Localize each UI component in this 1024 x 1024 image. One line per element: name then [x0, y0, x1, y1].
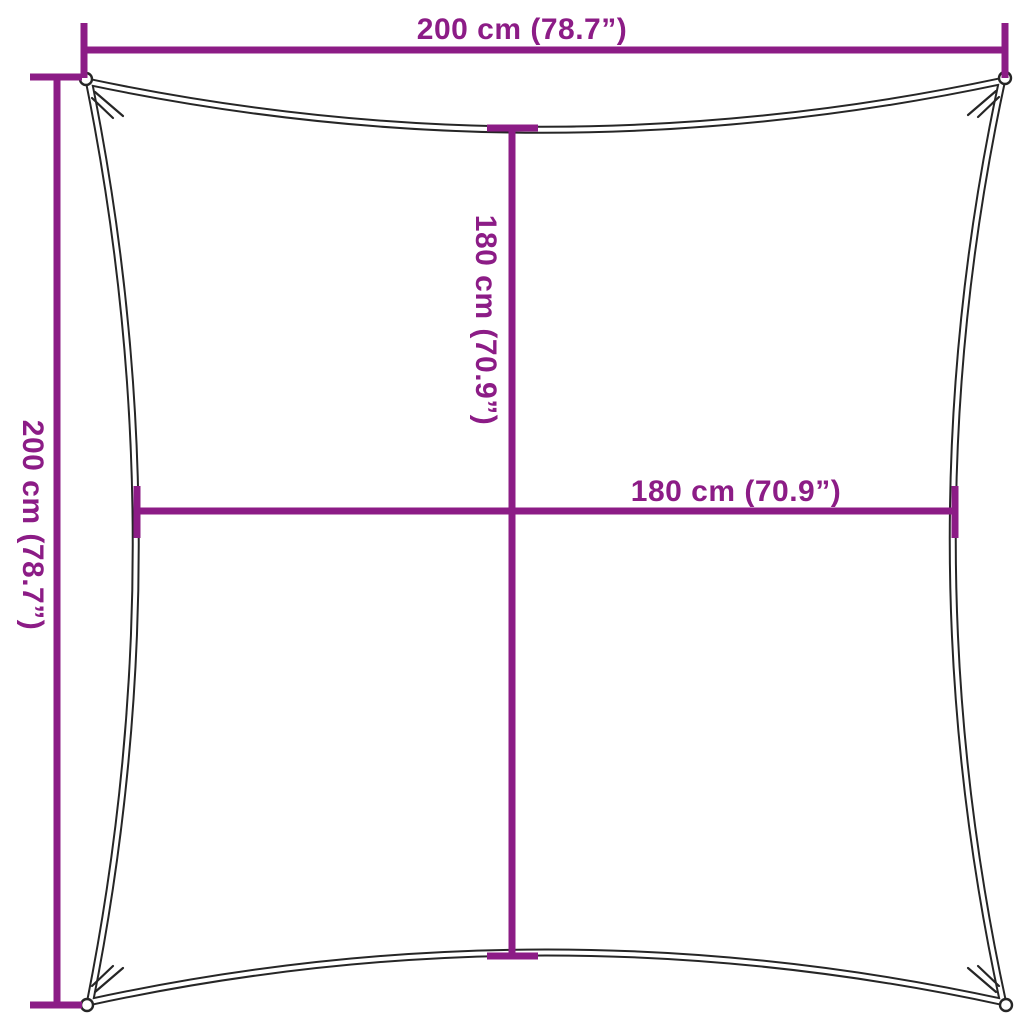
sail-outline-inner — [89, 81, 1003, 1002]
dimension-label-top: 200 cm (78.7”) — [417, 13, 627, 46]
grommet-ring-bottom-right — [1000, 999, 1012, 1011]
corner-rings — [80, 72, 1012, 1011]
grommet-ring-bottom-left — [81, 999, 93, 1011]
dimension-diagram-canvas: 200 cm (78.7”) 200 cm (78.7”) 180 cm (70… — [0, 0, 1024, 1024]
corner-fold-lines — [92, 91, 999, 992]
product-dimension-diagram: 200 cm (78.7”) 200 cm (78.7”) 180 cm (70… — [0, 0, 1024, 1024]
dimension-lines — [30, 23, 1005, 1005]
sail-outline-outer — [89, 81, 1003, 1002]
dimension-label-left: 200 cm (78.7”) — [16, 420, 49, 630]
dimension-label-inner-horizontal: 180 cm (70.9”) — [631, 475, 841, 508]
dimension-label-inner-vertical: 180 cm (70.9”) — [469, 215, 502, 425]
shade-sail — [80, 72, 1012, 1011]
